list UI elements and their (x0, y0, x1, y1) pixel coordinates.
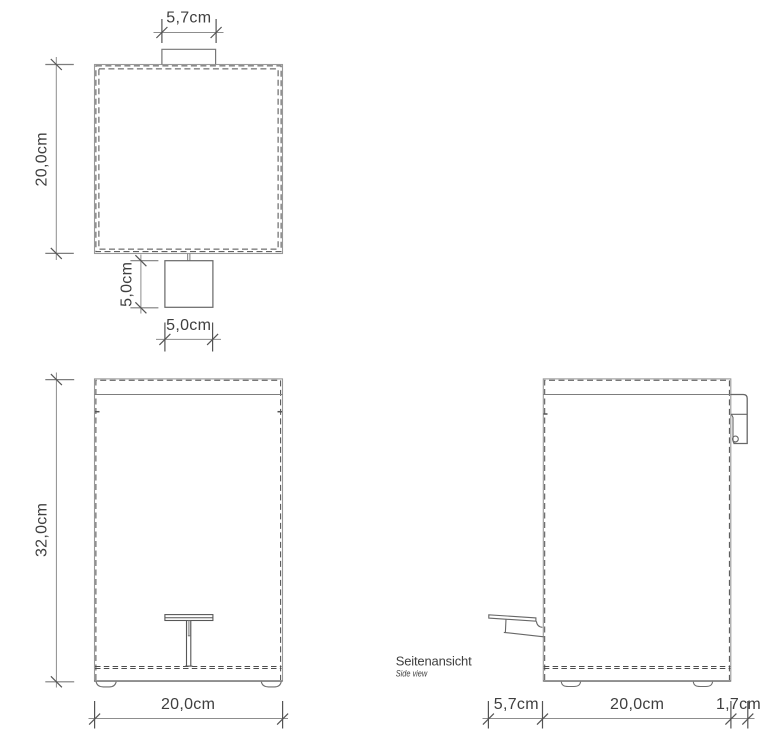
svg-text:20,0cm: 20,0cm (34, 132, 51, 186)
svg-text:Seitenansicht: Seitenansicht (396, 653, 472, 668)
svg-text:5,7cm: 5,7cm (494, 696, 539, 713)
svg-text:5,7cm: 5,7cm (166, 10, 211, 27)
svg-text:5,0cm: 5,0cm (166, 317, 211, 334)
svg-text:5,0cm: 5,0cm (118, 262, 135, 307)
svg-text:32,0cm: 32,0cm (34, 503, 51, 557)
svg-text:1,7cm: 1,7cm (716, 696, 761, 713)
svg-text:20,0cm: 20,0cm (161, 696, 215, 713)
svg-text:20,0cm: 20,0cm (610, 696, 664, 713)
svg-text:Side view: Side view (396, 668, 428, 679)
